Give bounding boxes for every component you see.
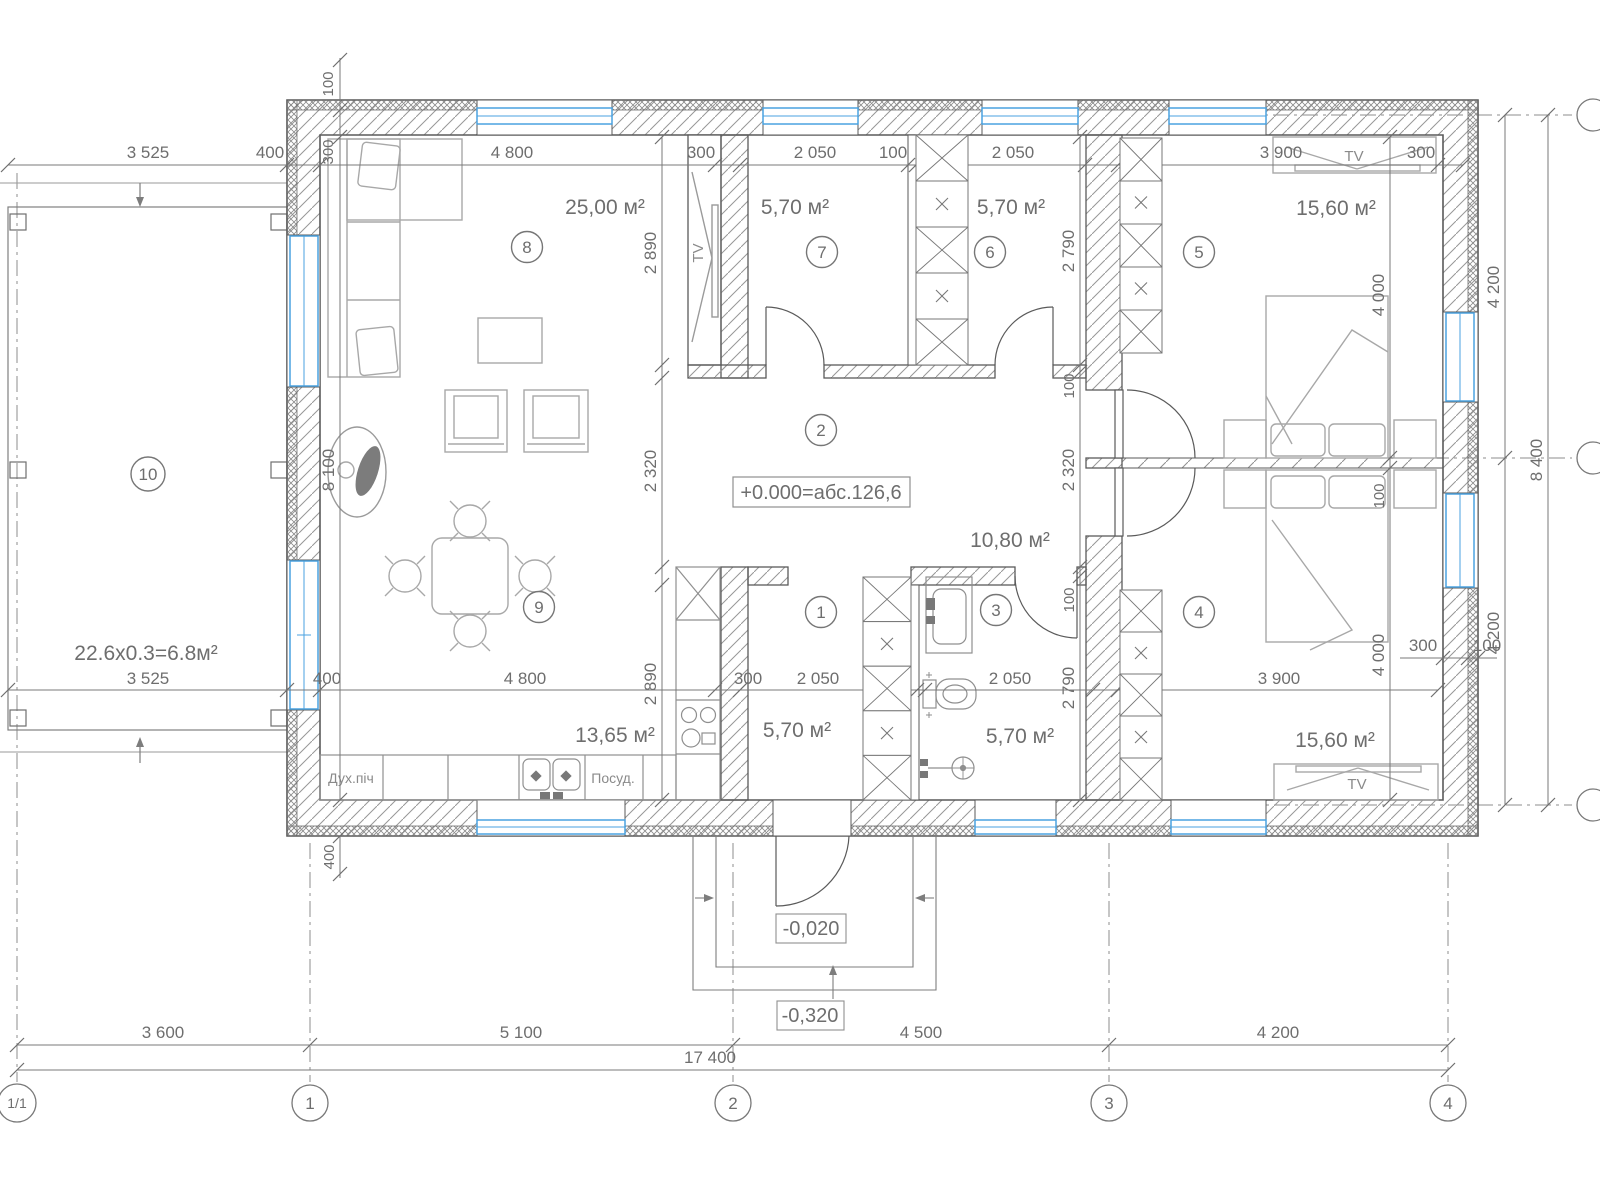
dim-right-outer-2: 4 200 <box>1484 612 1503 655</box>
room-4-number: 4 <box>1194 603 1203 622</box>
room-5-area: 15,60 м² <box>1296 197 1376 220</box>
room-3-number: 3 <box>991 601 1000 620</box>
level-entry-text: -0,020 <box>783 918 840 940</box>
room-2-number: 2 <box>816 421 825 440</box>
dim-mid-1: 400 <box>313 669 341 688</box>
tv-label-room5: TV <box>1344 148 1363 165</box>
room-6-number: 6 <box>985 243 994 262</box>
dim-left-8100: 8 100 <box>319 449 338 492</box>
axis-2: 2 <box>728 1094 737 1113</box>
room-8-number: 8 <box>522 238 531 257</box>
room-5-number: 5 <box>1194 243 1203 262</box>
room-6-area: 5,70 м² <box>977 196 1045 219</box>
dim-top-6: 2 050 <box>992 143 1035 162</box>
dim-left-inner-2: 2 890 <box>641 663 660 706</box>
dim-top-8: 3 900 <box>1260 143 1303 162</box>
dim-bed-inner-1: 100 <box>1371 483 1388 508</box>
dishwasher-label: Посуд. <box>591 770 634 786</box>
dim-bottom-2: 4 500 <box>900 1023 943 1042</box>
dim-top-3: 300 <box>687 143 715 162</box>
room-9-area: 13,65 м² <box>575 724 655 747</box>
dim-right-inner-3: 100 <box>1061 587 1078 612</box>
dim-mid-3: 300 <box>734 669 762 688</box>
dim-left-inner-0: 2 890 <box>641 232 660 275</box>
dim-bottom-1: 5 100 <box>500 1023 543 1042</box>
dim-mid-6: 2 050 <box>989 669 1032 688</box>
dim-mid-9: 300 <box>1409 636 1437 655</box>
dim-right-inner-2: 2 320 <box>1059 449 1078 492</box>
dim-bottom-0: 3 600 <box>142 1023 185 1042</box>
dim-top-1: 400 <box>256 143 284 162</box>
room-1-number: 1 <box>816 603 825 622</box>
dim-top-9: 300 <box>1407 143 1435 162</box>
dim-right-outer-1: 8 400 <box>1527 439 1546 482</box>
dim-top-5: 100 <box>879 143 907 162</box>
dim-left-inner-1: 2 320 <box>641 450 660 493</box>
level-ground-text: -0,320 <box>782 1005 839 1027</box>
dim-mid-0: 3 525 <box>127 669 170 688</box>
dim-right-inner-0: 2 790 <box>1059 230 1078 273</box>
axis-3: 3 <box>1104 1094 1113 1113</box>
axis-4: 4 <box>1443 1094 1452 1113</box>
floor-plan-page: 3 525 400 4 800 300 2 050 100 2 050 300 … <box>0 0 1600 1200</box>
dim-top-0: 3 525 <box>127 143 170 162</box>
dim-top-2: 4 800 <box>491 143 534 162</box>
room-3-area: 5,70 м² <box>986 725 1054 748</box>
dim-top-4: 2 050 <box>794 143 837 162</box>
axis-1-1: 1/1 <box>7 1095 27 1111</box>
room-8-area: 25,00 м² <box>565 196 645 219</box>
tv-label-room7: TV <box>690 243 707 262</box>
dim-right-inner-4: 2 790 <box>1059 667 1078 710</box>
room-9-number: 9 <box>534 598 543 617</box>
axis-1: 1 <box>305 1094 314 1113</box>
tv-label-room4: TV <box>1347 776 1366 793</box>
dim-left-400: 400 <box>321 844 338 869</box>
dim-bottom-3: 4 200 <box>1257 1023 1300 1042</box>
room-1-area: 5,70 м² <box>763 719 831 742</box>
room-4-area: 15,60 м² <box>1295 729 1375 752</box>
room-2-area: 10,80 м² <box>970 529 1050 552</box>
dim-bed-inner-2: 4 000 <box>1369 634 1388 677</box>
dim-right-outer-0: 4 200 <box>1484 266 1503 309</box>
room-10-area: 22.6x0.3=6.8м² <box>74 642 217 665</box>
dim-topleft-100: 100 <box>320 71 337 96</box>
dim-bed-inner-0: 4 000 <box>1369 274 1388 317</box>
dim-mid-2: 4 800 <box>504 669 547 688</box>
floor-plan-drawing: 3 525 400 4 800 300 2 050 100 2 050 300 … <box>0 0 1600 1200</box>
room-7-number: 7 <box>817 243 826 262</box>
level-zero-text: +0.000=абс.126,6 <box>740 482 901 504</box>
dim-mid-8: 3 900 <box>1258 669 1301 688</box>
dim-bottom-total: 17 400 <box>684 1048 736 1067</box>
room-7-area: 5,70 м² <box>761 196 829 219</box>
room-10-number: 10 <box>139 465 158 484</box>
oven-label: Дух.піч <box>328 770 374 786</box>
dim-mid-4: 2 050 <box>797 669 840 688</box>
